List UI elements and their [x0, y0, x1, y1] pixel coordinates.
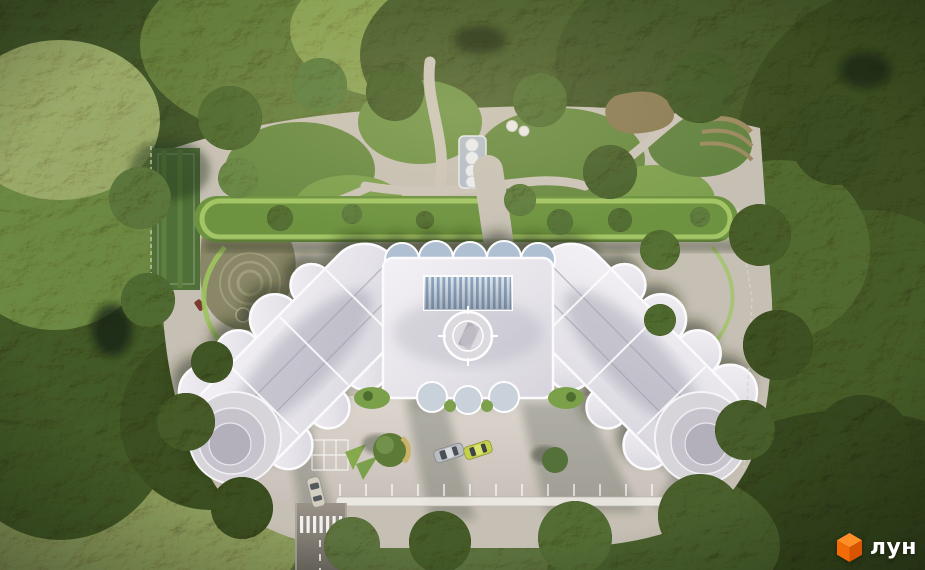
vignette [0, 0, 925, 570]
aerial-render: лун [0, 0, 925, 570]
aerial-scene [0, 0, 925, 570]
lun-cube-icon [836, 532, 863, 563]
lun-logo-text: лун [870, 537, 917, 559]
lun-logo: лун [836, 532, 917, 563]
